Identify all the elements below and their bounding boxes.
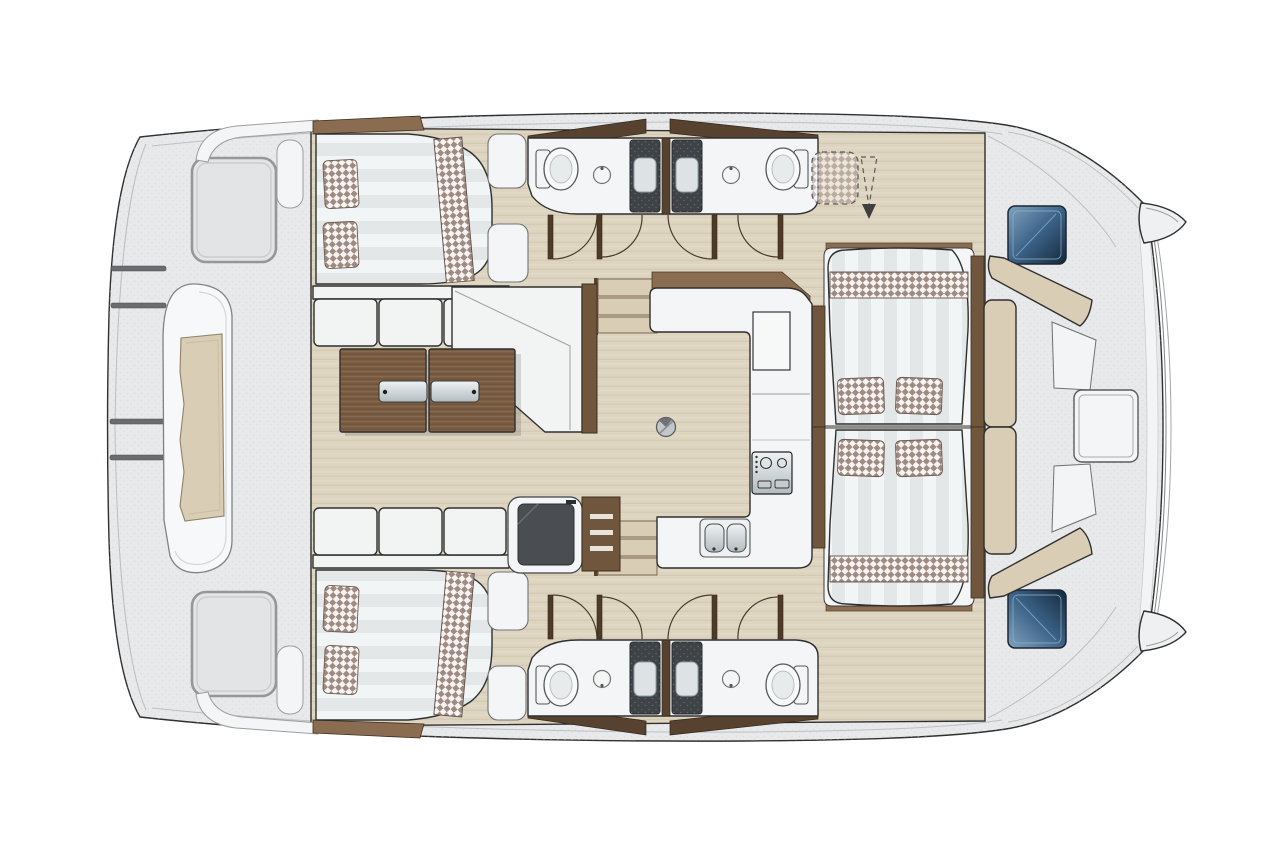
floor-hatch xyxy=(657,418,676,437)
galley-prep-inset xyxy=(753,312,790,370)
galley-sink xyxy=(700,519,750,557)
sofa-side-panel xyxy=(582,284,597,433)
coffee-table xyxy=(340,349,521,436)
bow-cockpit-table xyxy=(1074,390,1138,462)
dinghy-pad xyxy=(180,334,224,521)
tender-dinghy xyxy=(163,284,232,573)
salon-appliance xyxy=(508,497,582,573)
catamaran-floor-plan xyxy=(0,0,1280,853)
stove-cooktop xyxy=(752,452,792,494)
shelf-unit xyxy=(582,497,620,571)
table-latch xyxy=(431,381,479,402)
